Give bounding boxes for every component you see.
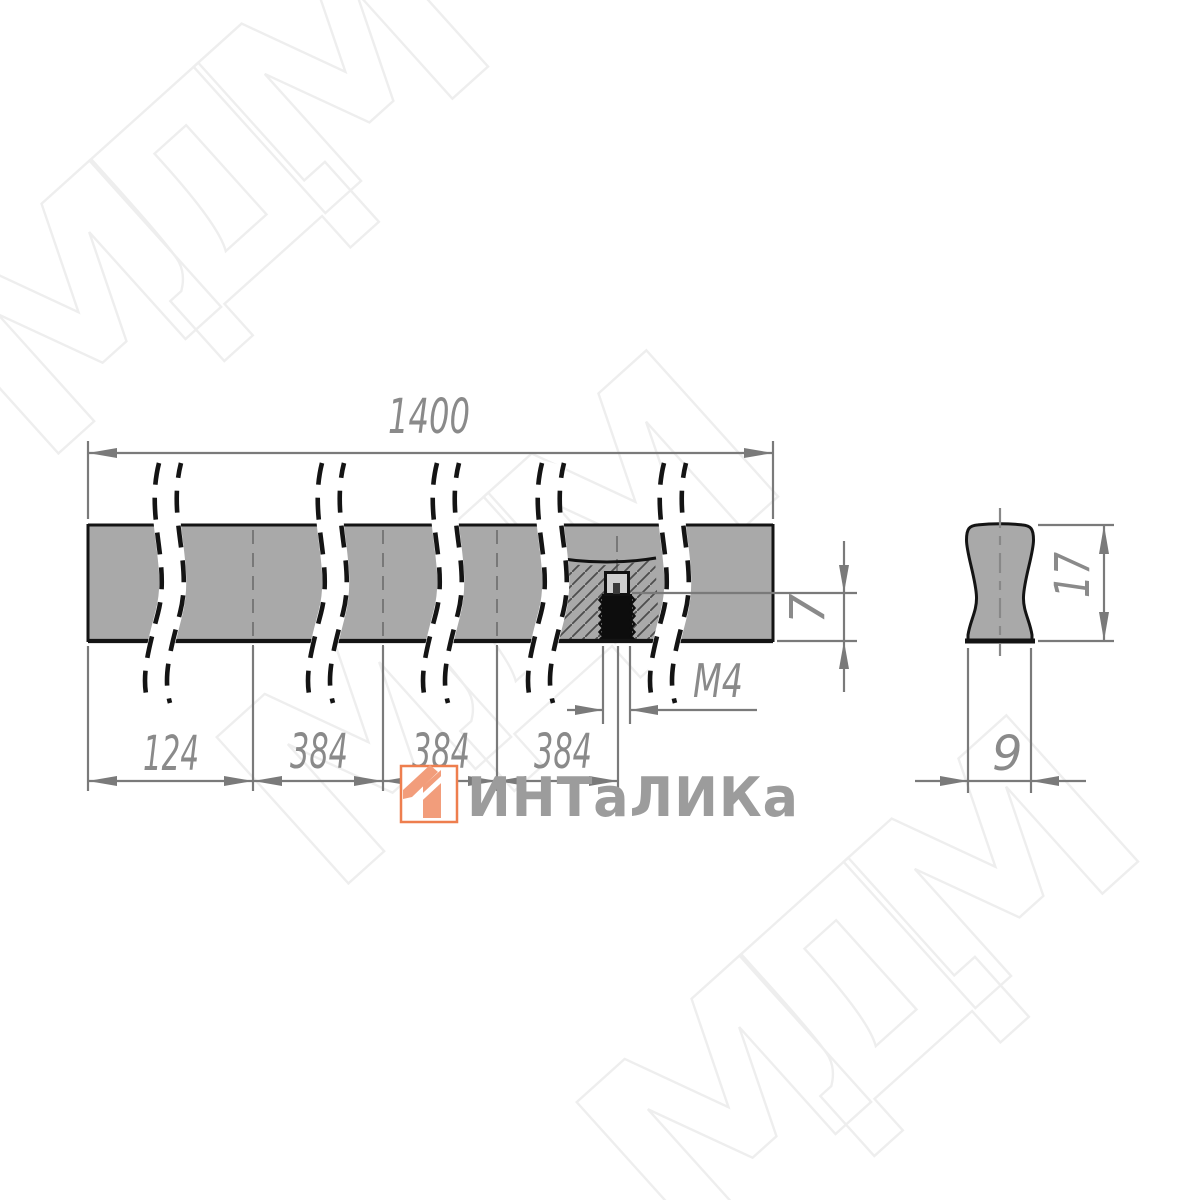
- dim-label-segment-1: 124: [143, 726, 199, 782]
- arrowhead: [88, 776, 117, 786]
- handle-technical-drawing: МДМ МДМ МДМ: [0, 0, 1200, 1200]
- dim-label-profile-width: 9: [992, 726, 1023, 782]
- dim-label-thread-depth: 7: [780, 593, 836, 624]
- dim-label-segment-2: 384: [290, 724, 348, 780]
- logo-icon: [401, 765, 457, 822]
- screw-head-slot: [613, 583, 620, 594]
- dim-label-profile-height: 17: [1045, 552, 1101, 598]
- arrowhead: [1099, 612, 1109, 641]
- front-view: [88, 463, 773, 703]
- screw-thread-body: [602, 594, 632, 641]
- logo-text: ИНТаЛИКа: [467, 766, 799, 829]
- technical-drawing-page: МДМ МДМ МДМ: [0, 0, 1200, 1200]
- arrowhead: [839, 565, 849, 593]
- arrowhead: [1031, 776, 1059, 786]
- dim-label-thread: M4: [693, 654, 743, 708]
- screw: [600, 573, 635, 642]
- side-section-view: [965, 508, 1035, 656]
- arrowhead: [1099, 525, 1109, 554]
- arrowhead: [839, 641, 849, 669]
- dim-label-overall-length: 1400: [388, 389, 470, 445]
- arrowhead: [744, 448, 773, 458]
- watermark-text: МДМ: [522, 674, 1182, 1200]
